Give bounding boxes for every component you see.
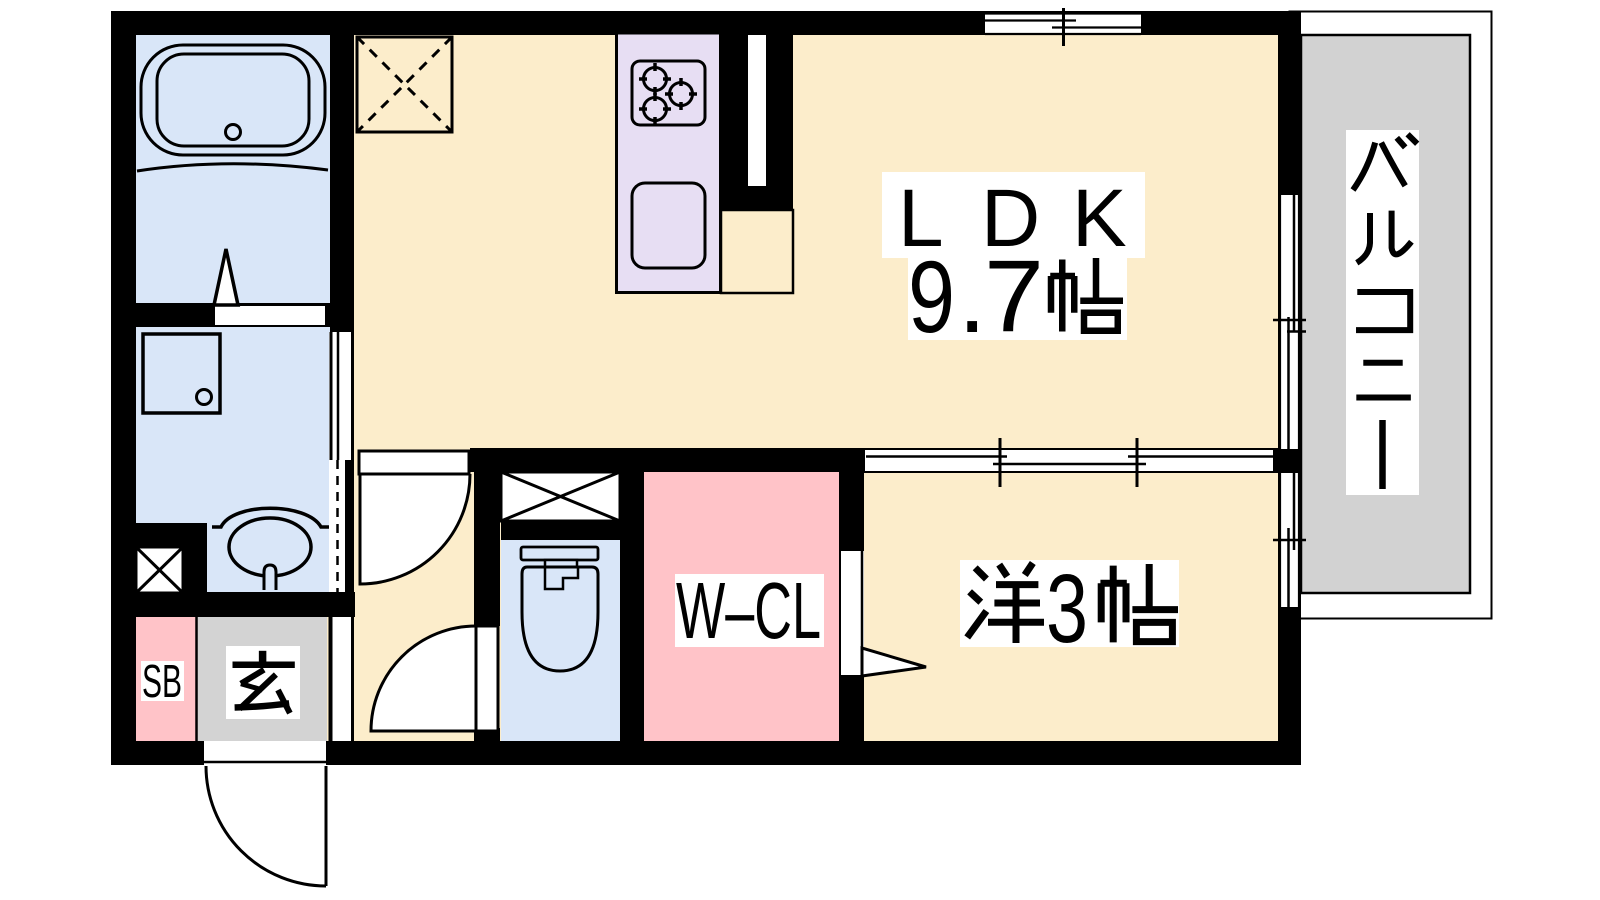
svg-text:K: K [1072,173,1127,264]
svg-text:3: 3 [1046,554,1088,663]
svg-text:9: 9 [908,240,955,354]
svg-text:SB: SB [142,655,182,707]
svg-text:.: . [958,240,986,354]
svg-text:W–CL: W–CL [676,566,821,655]
svg-text:7: 7 [984,239,1044,353]
